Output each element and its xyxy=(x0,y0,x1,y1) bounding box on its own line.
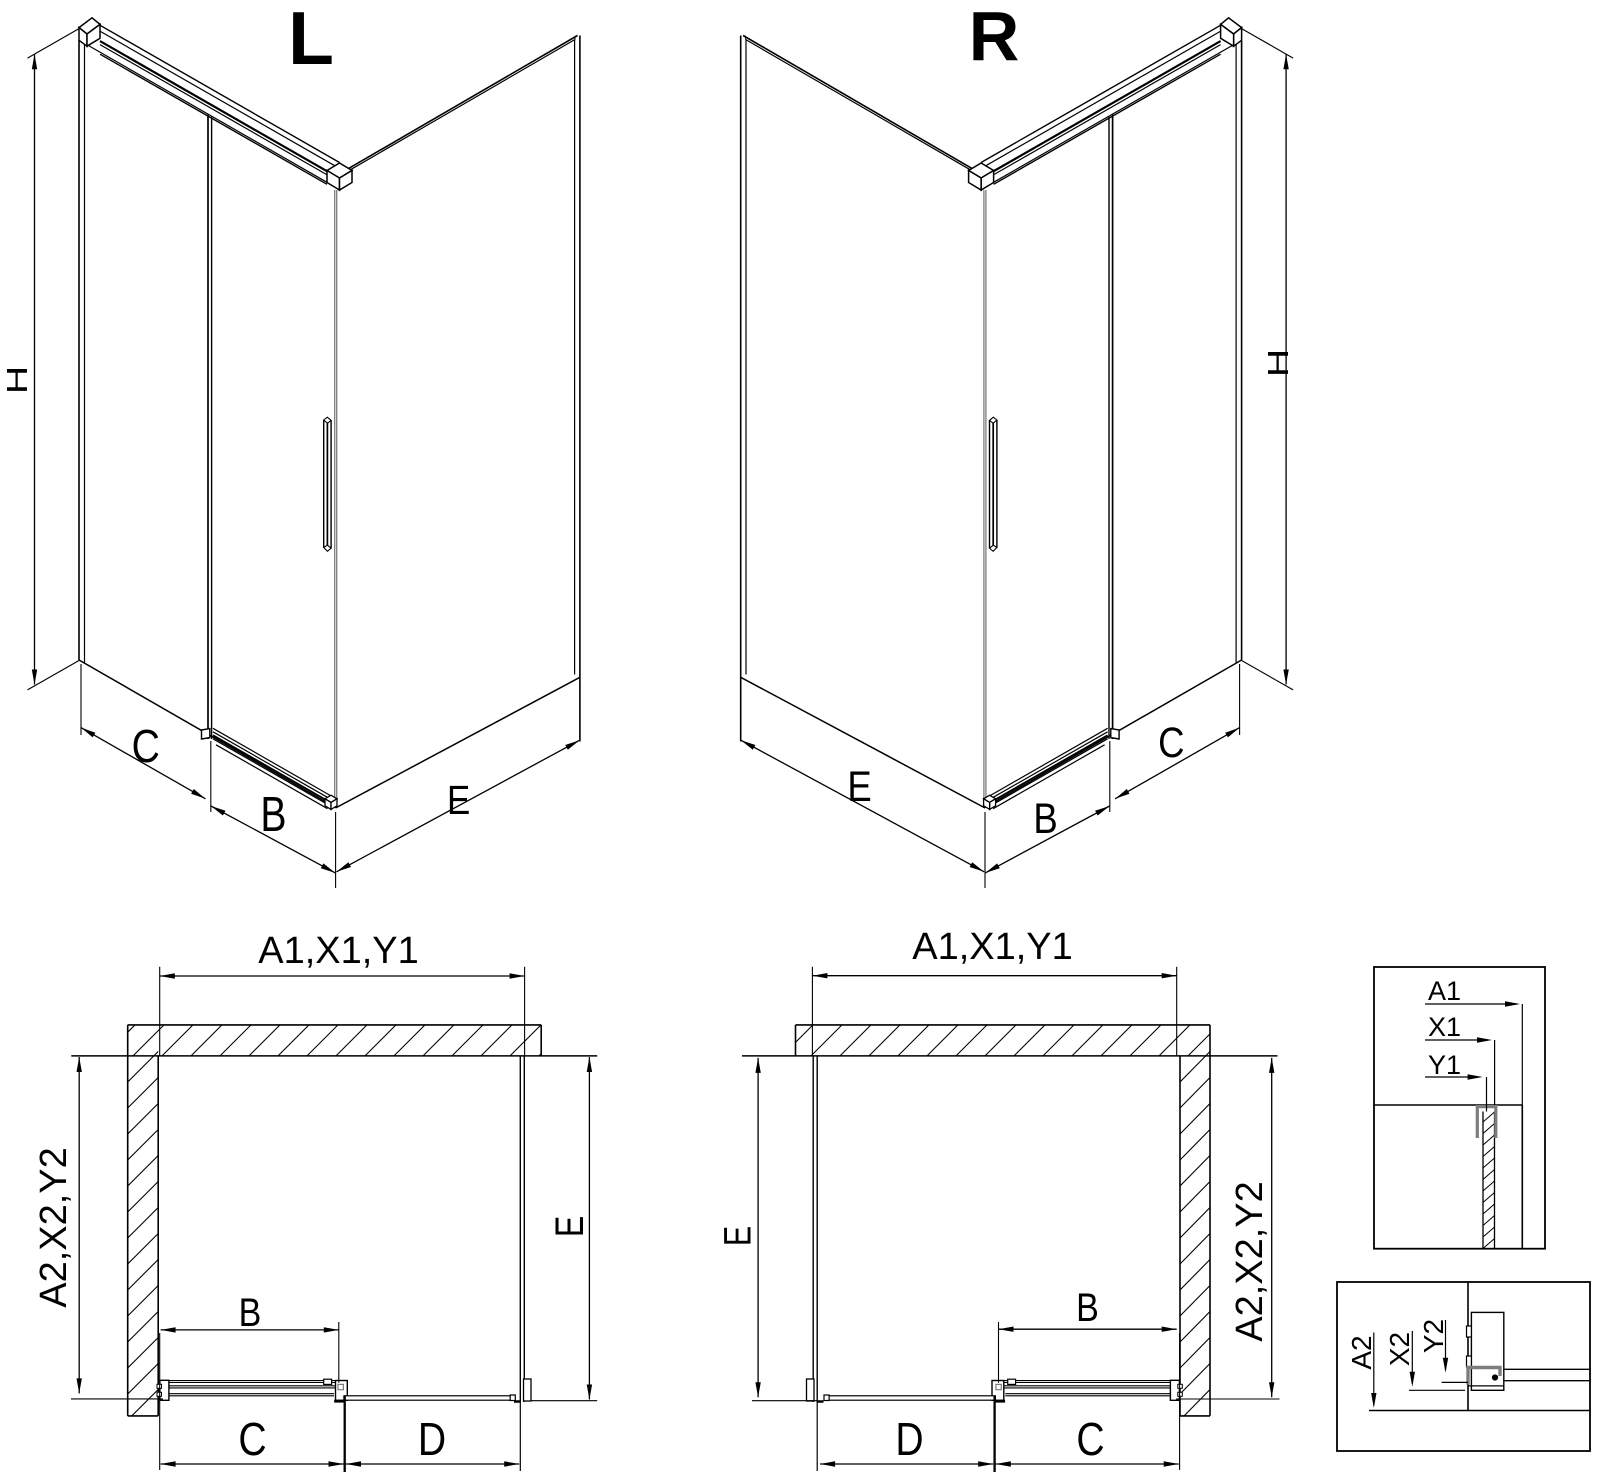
svg-text:E: E xyxy=(717,1226,759,1246)
svg-text:D: D xyxy=(895,1414,923,1466)
svg-text:R: R xyxy=(969,0,1020,75)
svg-text:A1: A1 xyxy=(1428,976,1461,1006)
svg-text:A1,X1,Y1: A1,X1,Y1 xyxy=(258,930,419,972)
svg-text:Y2: Y2 xyxy=(1418,1319,1449,1353)
svg-text:B: B xyxy=(260,788,286,842)
svg-text:H: H xyxy=(1263,349,1295,377)
svg-text:D: D xyxy=(418,1414,446,1466)
svg-text:C: C xyxy=(1076,1414,1104,1466)
svg-text:E: E xyxy=(447,778,470,823)
svg-text:B: B xyxy=(239,1289,262,1334)
svg-text:E: E xyxy=(847,763,871,810)
svg-text:A1,X1,Y1: A1,X1,Y1 xyxy=(912,926,1073,968)
svg-text:A2,X2,Y2: A2,X2,Y2 xyxy=(1229,1181,1271,1342)
svg-text:A2,X2,Y2: A2,X2,Y2 xyxy=(33,1147,75,1308)
svg-text:Y1: Y1 xyxy=(1428,1050,1461,1080)
svg-text:H: H xyxy=(2,366,34,394)
svg-text:C: C xyxy=(238,1414,266,1466)
svg-text:C: C xyxy=(1158,719,1184,766)
svg-text:B: B xyxy=(1076,1284,1099,1329)
svg-text:A2: A2 xyxy=(1346,1335,1377,1369)
svg-text:L: L xyxy=(288,0,334,80)
svg-text:X2: X2 xyxy=(1384,1332,1415,1366)
svg-text:B: B xyxy=(1033,795,1057,842)
svg-text:C: C xyxy=(132,721,160,773)
svg-text:E: E xyxy=(547,1216,592,1237)
svg-text:X1: X1 xyxy=(1428,1012,1461,1042)
